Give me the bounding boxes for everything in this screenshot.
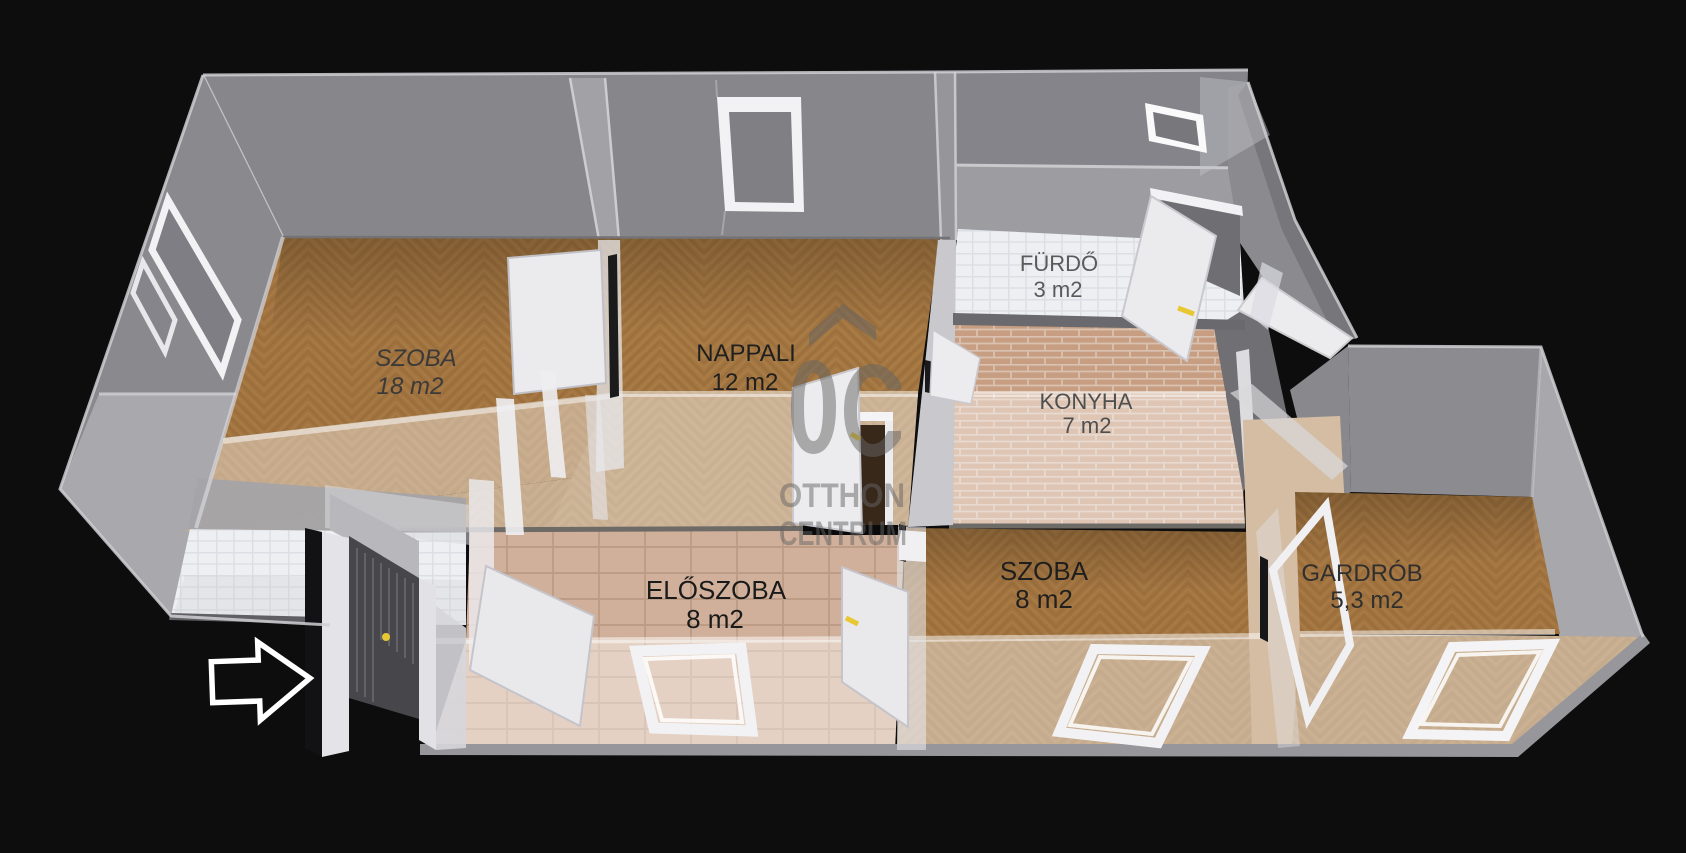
svg-text:FÜRDŐ: FÜRDŐ [1020, 251, 1098, 276]
svg-text:7 m2: 7 m2 [1063, 413, 1112, 438]
svg-text:GARDRÓB: GARDRÓB [1301, 560, 1422, 587]
svg-text:OTTHON: OTTHON [779, 477, 905, 515]
svg-text:3 m2: 3 m2 [1034, 277, 1083, 302]
svg-text:12 m2: 12 m2 [712, 369, 779, 396]
svg-text:8 m2: 8 m2 [686, 604, 744, 634]
svg-text:5,3 m2: 5,3 m2 [1330, 587, 1403, 614]
svg-text:SZOBA: SZOBA [375, 345, 456, 372]
svg-text:SZOBA: SZOBA [1000, 556, 1089, 586]
svg-text:KONYHA: KONYHA [1040, 389, 1133, 414]
svg-text:NAPPALI: NAPPALI [696, 340, 796, 367]
svg-text:ELŐSZOBA: ELŐSZOBA [646, 575, 787, 605]
svg-text:8 m2: 8 m2 [1015, 584, 1073, 614]
svg-text:18 m2: 18 m2 [377, 373, 444, 400]
svg-text:CENTRUM: CENTRUM [779, 515, 907, 553]
